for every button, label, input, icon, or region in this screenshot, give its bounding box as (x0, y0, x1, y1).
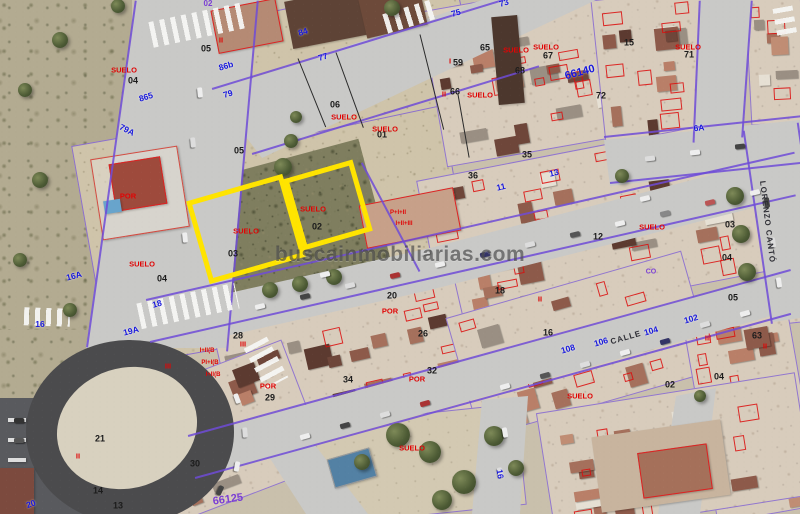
street-code-label: 66140 (564, 64, 596, 83)
street-code-label: 73 (498, 0, 510, 8)
cadastral-red-label: SUELO (300, 205, 326, 213)
street-code-label: 102 (683, 313, 699, 325)
cadastral-red-label: I+II+III (395, 221, 412, 227)
parcel-number-label: 36 (468, 172, 478, 181)
cadastral-red-label: II (538, 295, 542, 303)
parcel-number-label: 15 (624, 39, 634, 48)
parcel-number-label: 59 (453, 59, 463, 68)
parcel-number-label: 02 (312, 223, 322, 232)
street-name-label: LORENZO CANTÓ (758, 180, 776, 263)
parcel-number-label: 05 (234, 147, 244, 156)
cadastral-red-label: SUELO (533, 43, 559, 51)
parcel-number-label: 03 (725, 221, 735, 230)
parcel-number-label: 12 (593, 233, 603, 242)
street-code-label: 84 (297, 27, 309, 38)
parcel-number-label: 72 (596, 92, 606, 101)
cadastral-red-label: SUELO (233, 227, 259, 235)
block-code-label: 66125 (212, 492, 244, 507)
parcel-number-label: 67 (543, 52, 553, 61)
cadastral-red-label: III (165, 362, 171, 370)
street-code-label: 106 (593, 336, 609, 348)
parcel-number-label: 71 (684, 51, 694, 60)
street-code-label: 13 (548, 168, 559, 178)
parcel-number-label: 14 (93, 487, 103, 496)
street-code-label: 865 (138, 91, 154, 103)
street-name-label: CALLE (610, 330, 643, 346)
parcel-number-label: 30 (190, 460, 200, 469)
cadastral-red-label: POR (120, 192, 136, 200)
cadastral-red-label: SUELO (467, 91, 493, 99)
parcel-number-label: 18 (495, 287, 505, 296)
parcel-number-label: 04 (128, 77, 138, 86)
cadastral-red-label: II (763, 342, 767, 350)
cadastral-red-label: SUELO (503, 46, 529, 54)
cadastral-red-label: II (76, 452, 80, 460)
parcel-number-label: 20 (387, 292, 397, 301)
street-code-label: 75 (450, 8, 462, 19)
parcel-number-label: 04 (157, 275, 167, 284)
street-code-label: 16A (65, 270, 82, 282)
cadastral-red-label: I+II(B (200, 348, 215, 354)
cadastral-red-label: SUELO (111, 66, 137, 74)
cadastral-red-label: SUELO (567, 392, 593, 400)
street-code-label: 104 (643, 325, 659, 337)
cadastral-red-label: PI+I(B (201, 360, 218, 366)
parcel-number-label: 04 (714, 373, 724, 382)
parcel-number-label: 66 (450, 88, 460, 97)
parcel-number-label: 29 (265, 394, 275, 403)
block-code-label: CO (646, 269, 657, 276)
parcel-number-label: 06 (330, 101, 340, 110)
block-code-label: 02 (204, 0, 213, 8)
cadastral-red-label: II (219, 36, 223, 44)
parcel-number-label: 34 (343, 376, 353, 385)
street-code-label: 6A (693, 123, 705, 132)
parcel-number-label: 02 (665, 381, 675, 390)
parcel-number-label: 05 (728, 294, 738, 303)
street-code-label: 86b (218, 60, 235, 72)
street-code-label: 20 (25, 498, 37, 509)
street-code-label: 16 (495, 469, 505, 480)
cadastral-red-label: SUELO (675, 43, 701, 51)
cadastral-red-label: POR (382, 307, 398, 315)
street-code-label: 79 (222, 89, 234, 100)
parcel-number-label: 63 (752, 332, 762, 341)
aerial-cadastral-map[interactable]: 777986584757386b79A16A161819A6A661401081… (0, 0, 800, 514)
street-code-label: 79A (118, 123, 136, 138)
parcel-number-label: 68 (515, 67, 525, 76)
parcel-number-label: 04 (722, 254, 732, 263)
parcel-number-label: 21 (95, 435, 105, 444)
cadastral-red-label: III (240, 340, 246, 348)
cadastral-red-label: I+II(B (206, 372, 221, 378)
cadastral-red-label: I (449, 57, 451, 65)
street-code-label: 19A (122, 325, 139, 337)
parcel-number-label: 16 (543, 329, 553, 338)
parcel-number-label: 35 (522, 151, 532, 160)
street-code-label: 16 (35, 320, 44, 329)
street-code-label: 77 (317, 52, 329, 63)
street-code-label: 18 (151, 299, 162, 310)
map-labels-layer: 777986584757386b79A16A161819A6A661401081… (0, 0, 800, 514)
parcel-number-label: 32 (427, 367, 437, 376)
street-code-label: 108 (560, 343, 576, 355)
cadastral-red-label: P+I+II (390, 210, 406, 216)
parcel-number-label: 26 (418, 330, 428, 339)
cadastral-red-label: SUELO (399, 444, 425, 452)
cadastral-red-label: POR (260, 382, 276, 390)
cadastral-red-label: SUELO (372, 125, 398, 133)
street-code-label: 11 (496, 182, 507, 192)
cadastral-red-label: POR (409, 375, 425, 383)
parcel-number-label: 05 (201, 45, 211, 54)
parcel-number-label: 13 (113, 502, 123, 511)
parcel-number-label: 03 (228, 250, 238, 259)
cadastral-red-label: SUELO (331, 113, 357, 121)
cadastral-red-label: SUELO (129, 260, 155, 268)
cadastral-red-label: III (705, 334, 711, 342)
cadastral-red-label: SUELO (639, 223, 665, 231)
parcel-number-label: 65 (480, 44, 490, 53)
cadastral-red-label: II (442, 90, 446, 98)
